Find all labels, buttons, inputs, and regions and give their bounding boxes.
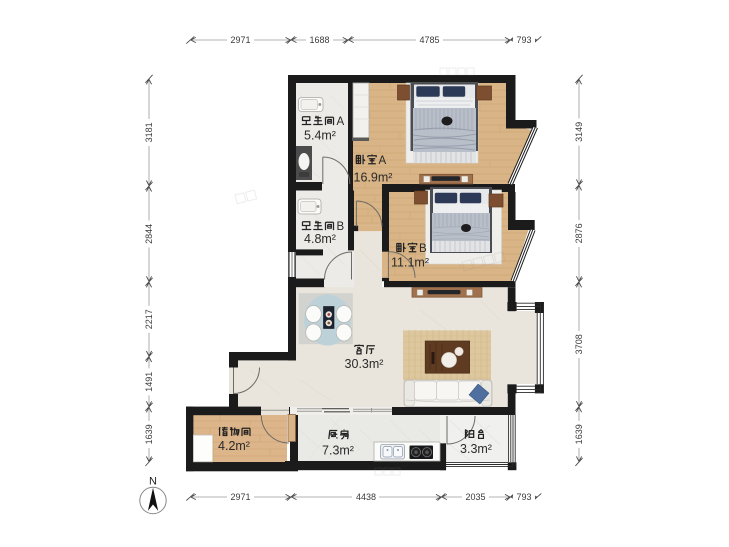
svg-text:4.2m²: 4.2m²	[218, 439, 250, 453]
svg-text:1491: 1491	[144, 372, 154, 392]
svg-text:4438: 4438	[356, 492, 376, 502]
svg-text:2844: 2844	[144, 224, 154, 244]
svg-text:3181: 3181	[144, 122, 154, 142]
svg-text:A: A	[379, 155, 387, 167]
svg-text:2876: 2876	[574, 223, 584, 243]
svg-text:7.3m²: 7.3m²	[322, 444, 354, 458]
svg-text:2217: 2217	[144, 309, 154, 329]
svg-text:16.9m²: 16.9m²	[354, 171, 393, 185]
svg-text:B: B	[419, 243, 427, 255]
svg-text:N: N	[149, 476, 157, 488]
svg-text:30.3m²: 30.3m²	[345, 357, 384, 371]
svg-text:793: 793	[516, 35, 531, 45]
svg-text:5.4m²: 5.4m²	[304, 129, 336, 143]
svg-text:11.1m²: 11.1m²	[391, 256, 429, 270]
svg-text:2035: 2035	[465, 492, 485, 502]
svg-text:2971: 2971	[230, 35, 250, 45]
svg-text:4785: 4785	[419, 35, 439, 45]
svg-text:1639: 1639	[574, 424, 584, 444]
svg-text:B: B	[337, 221, 345, 233]
svg-text:3708: 3708	[574, 334, 584, 354]
svg-text:2971: 2971	[230, 492, 250, 502]
svg-text:793: 793	[516, 492, 531, 502]
svg-text:A: A	[337, 116, 345, 128]
svg-text:1639: 1639	[144, 424, 154, 444]
svg-text:3.3m²: 3.3m²	[460, 442, 492, 456]
svg-text:1688: 1688	[309, 35, 329, 45]
svg-text:3149: 3149	[574, 122, 584, 142]
svg-text:4.8m²: 4.8m²	[304, 232, 336, 246]
